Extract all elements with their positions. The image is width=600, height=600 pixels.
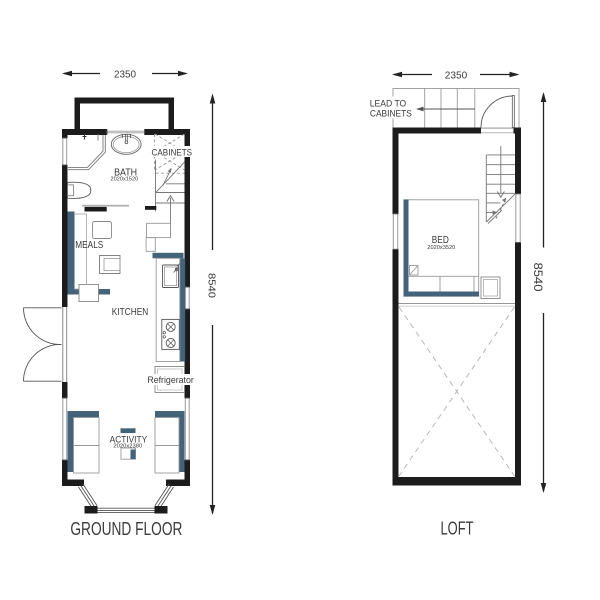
svg-text:KITCHEN: KITCHEN <box>112 306 149 318</box>
svg-text:CABINETS: CABINETS <box>370 108 412 118</box>
svg-text:2020x3520: 2020x3520 <box>427 245 455 251</box>
svg-text:2020x2380: 2020x2380 <box>113 443 142 449</box>
svg-text:LOFT: LOFT <box>441 519 474 539</box>
svg-text:8540: 8540 <box>206 273 218 298</box>
svg-text:GROUND FLOOR: GROUND FLOOR <box>70 518 182 539</box>
svg-text:CABINETS: CABINETS <box>152 148 193 159</box>
svg-text:2350: 2350 <box>445 70 468 82</box>
svg-text:Refrigerator: Refrigerator <box>147 375 194 386</box>
svg-text:LEAD TO: LEAD TO <box>370 98 407 108</box>
svg-text:2350: 2350 <box>114 69 136 81</box>
svg-text:MEALS: MEALS <box>75 239 103 251</box>
svg-text:8540: 8540 <box>531 263 543 292</box>
svg-text:2020x1520: 2020x1520 <box>111 177 139 183</box>
